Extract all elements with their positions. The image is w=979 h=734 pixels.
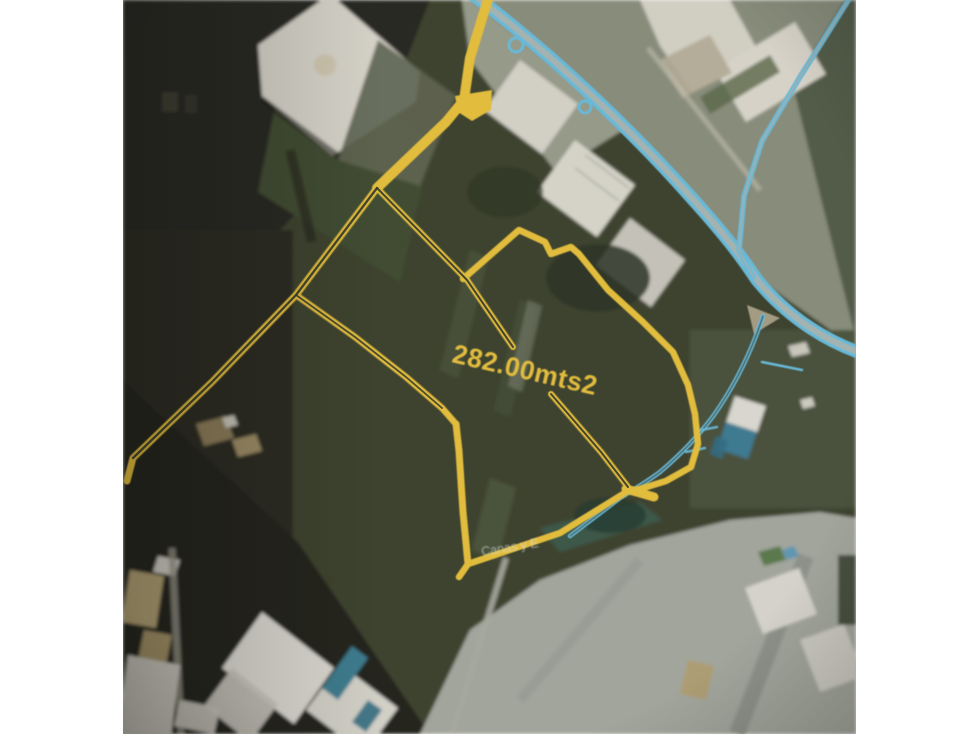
photo-area: 282.00mts2 Canas y E: [118, 0, 864, 734]
screenshot-canvas: 282.00mts2 Canas y E: [0, 0, 979, 734]
aerial-photo-listing: 282.00mts2 Canas y E: [0, 0, 979, 734]
vignette: [123, 0, 856, 734]
